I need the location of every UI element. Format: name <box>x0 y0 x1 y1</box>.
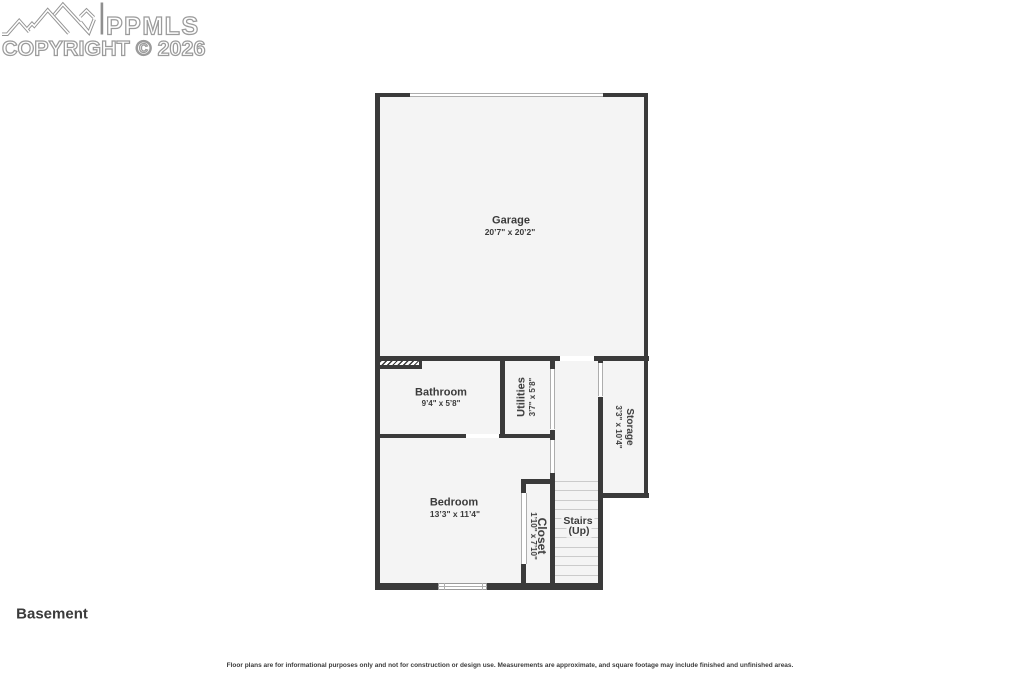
svg-text:COPYRIGHT © 2026: COPYRIGHT © 2026 <box>2 37 205 61</box>
